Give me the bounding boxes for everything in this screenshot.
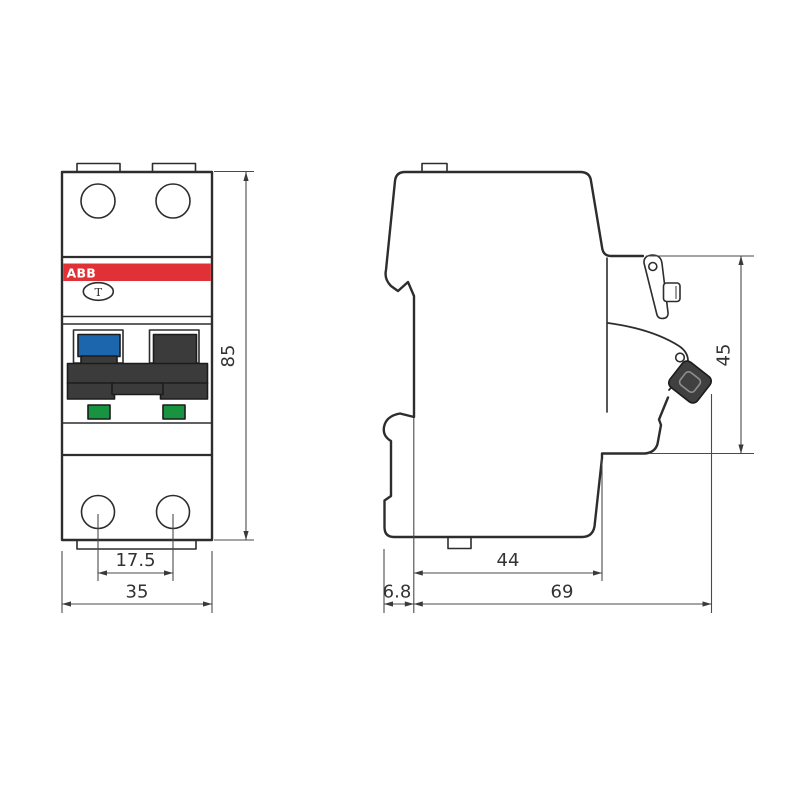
dim-arrow: [243, 531, 248, 540]
dim-width-label: 35: [126, 582, 149, 603]
side-top-tab: [422, 164, 447, 173]
tie-bar-left-block: [68, 383, 115, 399]
technical-drawing-canvas: ABB T 17.5: [0, 0, 800, 800]
flange-hole: [649, 263, 657, 271]
dim-arrow: [164, 570, 173, 575]
dim-arrow: [62, 601, 71, 606]
dim-arrow: [414, 601, 423, 606]
dim-total-depth-label: 69: [551, 582, 574, 603]
dim-depth-to-rail-label: 44: [497, 550, 520, 571]
dim-arrow: [593, 570, 602, 575]
dim-rail-offset-label: 6.8: [383, 582, 412, 603]
dim-arrow: [414, 570, 423, 575]
terminal-screw-side: [664, 283, 681, 302]
tie-bar-right-block: [161, 383, 208, 399]
side-body-profile: [384, 172, 668, 537]
toggle-lever: [666, 359, 713, 406]
terminal-screw-top-left: [81, 184, 115, 218]
status-indicator-left: [88, 405, 110, 419]
dim-pole-spacing-label: 17.5: [115, 550, 155, 571]
front-bottom-tab: [77, 540, 196, 549]
toggle-lever-body: [666, 359, 713, 406]
breaker-dimension-drawing: ABB T 17.5: [0, 0, 800, 800]
dim-arrow: [703, 601, 712, 606]
side-view: [384, 164, 714, 549]
tie-bar-connector: [112, 383, 163, 395]
side-bottom-tab: [448, 537, 471, 549]
toggle-handle-dark: [154, 335, 197, 365]
dim-arrow: [98, 570, 107, 575]
terminal-screw-top-right: [156, 184, 190, 218]
dim-arrow: [203, 601, 212, 606]
front-top-tab-right: [153, 164, 196, 173]
handle-tie-bar: [68, 364, 208, 400]
dim-arrow: [738, 445, 743, 454]
front-top-tab-left: [77, 164, 120, 173]
dim-front-height-label: 45: [714, 344, 735, 367]
brand-logo-text: ABB: [67, 266, 97, 281]
tie-bar-band: [68, 364, 208, 384]
dim-arrow: [738, 256, 743, 265]
front-view: ABB T: [62, 164, 212, 550]
toggle-handle-blue: [78, 335, 120, 357]
pivot-hole: [676, 353, 685, 362]
test-button-label: T: [94, 285, 102, 299]
dim-height-label: 85: [218, 345, 239, 368]
dim-arrow: [243, 172, 248, 181]
status-indicator-right: [163, 405, 185, 419]
